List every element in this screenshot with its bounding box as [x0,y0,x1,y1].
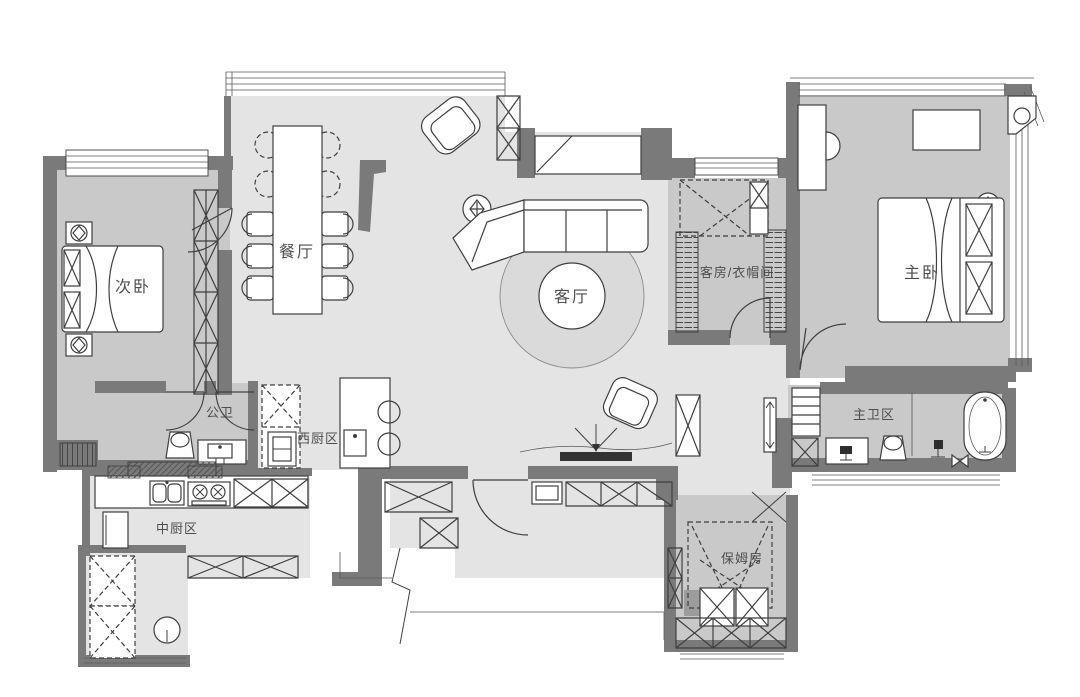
faucet-icon [934,440,943,449]
wardrobe-rail-icon [676,232,698,332]
label-secondary-bedroom: 次卧 [115,278,151,296]
notch-top-right [505,92,672,132]
radiator-icon [60,443,96,466]
dining-table-icon [273,126,322,314]
label-master-bathroom: 主卫区 [853,407,895,422]
floor-plan-canvas: 次卧 餐厅 客厅 客房/衣帽间 主卧 公卫 西厨区 中厨区 主卫区 保姆房 [0,0,1080,697]
label-dining-room: 餐厅 [279,243,315,261]
desk-icon [798,105,826,190]
label-master-bedroom: 主卧 [904,264,940,282]
cabinet-block [684,590,702,616]
sliding-door-hatch [188,466,222,478]
wardrobe-rail-icon [764,230,786,332]
fridge-icon [103,512,128,548]
floor-plan-drawing: 次卧 餐厅 客厅 客房/衣帽间 主卧 公卫 西厨区 中厨区 主卫区 保姆房 [0,0,1080,697]
label-living-room: 客厅 [554,288,590,306]
label-chinese-kitchen: 中厨区 [156,521,198,536]
sliding-door-hatch [108,466,140,478]
tv-icon [560,452,632,461]
label-nanny-room: 保姆房 [721,551,763,566]
label-guest-bathroom: 公卫 [206,405,234,420]
window-seat-icon [535,136,641,174]
tv-mirror-icon [840,446,852,454]
label-western-kitchen: 西厨区 [297,431,339,446]
towel-ladder-icon [792,388,820,436]
bench-icon [913,110,980,150]
label-guest-room-cloakroom: 客房/衣帽间 [700,265,775,280]
island-counter-icon [340,378,390,468]
